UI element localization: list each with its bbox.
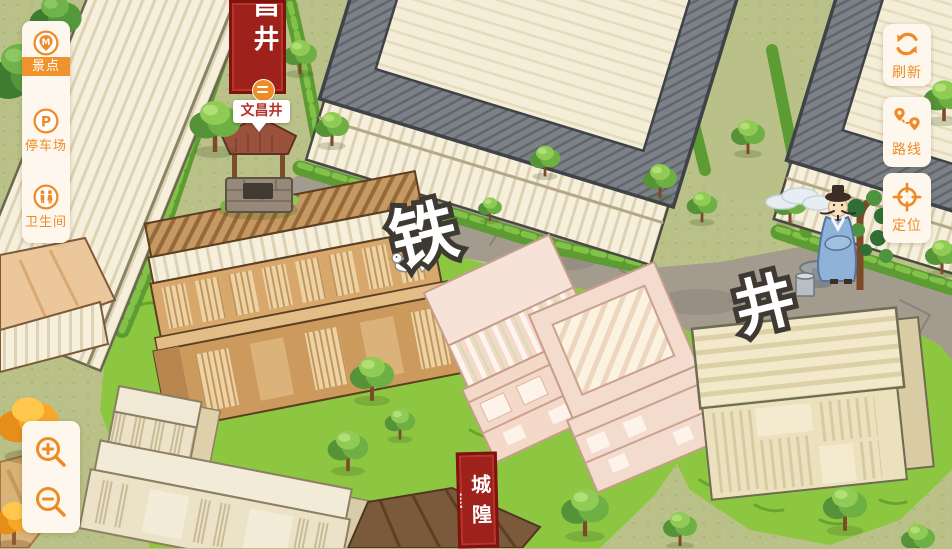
poi-label[interactable]: 文昌井	[233, 100, 290, 123]
map-stage: 铁 井 文昌井 城隍雅 文昌井 M 景点 P 停车场	[0, 0, 952, 548]
sidebar-item-scenic[interactable]: M 景点	[22, 29, 70, 76]
banner-bottom-text: 城隍雅	[459, 463, 496, 546]
banner-chenghuang: 城隍雅	[456, 451, 499, 548]
building-tan-right	[692, 305, 935, 500]
zoom-out-icon[interactable]	[33, 484, 69, 520]
poi-pointer	[252, 123, 266, 132]
svg-text:P: P	[41, 114, 51, 130]
route-icon	[891, 106, 923, 136]
locate-label: 定位	[892, 215, 922, 235]
sidebar: M 景点 P 停车场 卫生间	[22, 21, 70, 243]
locate-button[interactable]: 定位	[883, 173, 931, 243]
scenic-spot-icon: M	[32, 29, 60, 57]
zoom-controls	[22, 421, 80, 533]
route-label: 路线	[892, 139, 922, 159]
zoom-in-icon[interactable]	[33, 434, 69, 470]
refresh-button[interactable]: 刷新	[883, 24, 931, 86]
toilet-icon	[32, 183, 60, 211]
refresh-label: 刷新	[892, 62, 922, 82]
refresh-icon	[892, 29, 922, 59]
sidebar-label-parking: 停车场	[22, 135, 70, 154]
sidebar-item-toilet[interactable]: 卫生间	[22, 183, 70, 230]
sidebar-item-parking[interactable]: P 停车场	[22, 107, 70, 154]
svg-text:M: M	[42, 38, 51, 48]
locate-icon	[892, 182, 922, 212]
parking-icon: P	[32, 107, 60, 135]
sidebar-label-scenic: 景点	[22, 57, 70, 76]
banner-top-text: 文昌井	[232, 0, 283, 59]
route-button[interactable]: 路线	[883, 97, 931, 167]
sidebar-label-toilet: 卫生间	[22, 211, 70, 230]
poi-badge-icon[interactable]	[252, 79, 275, 102]
